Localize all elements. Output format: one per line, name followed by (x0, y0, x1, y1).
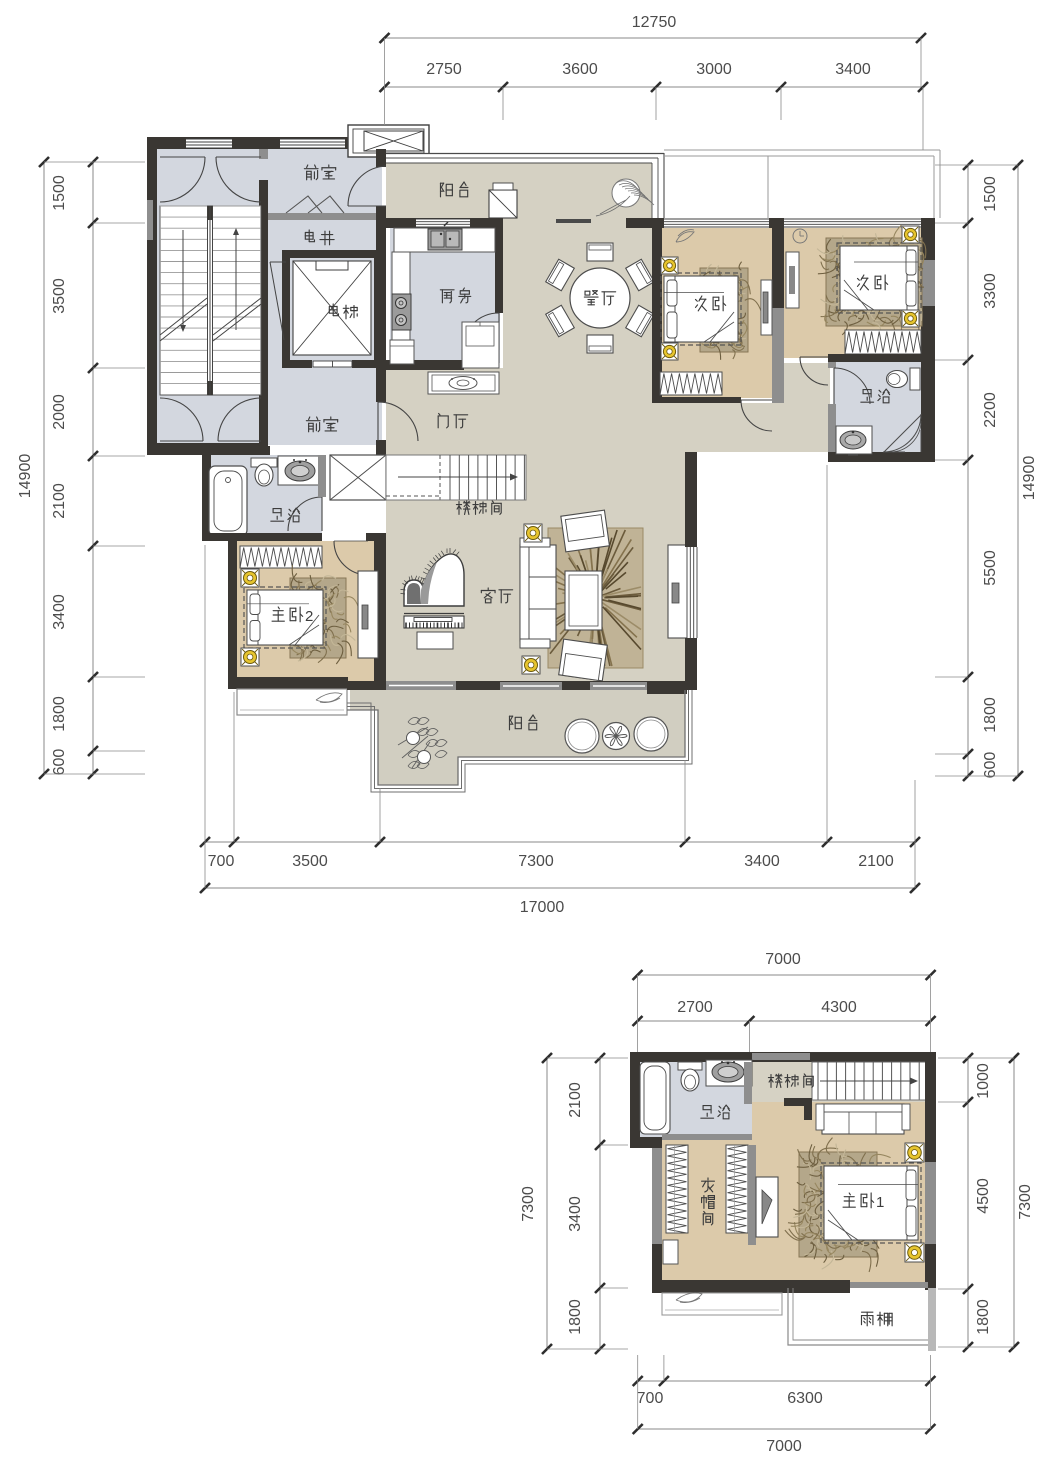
svg-text:2100: 2100 (567, 1082, 584, 1118)
svg-text:7300: 7300 (1017, 1184, 1034, 1220)
svg-text:600: 600 (982, 752, 999, 779)
svg-text:600: 600 (51, 749, 68, 776)
svg-text:3400: 3400 (51, 594, 68, 630)
svg-text:7300: 7300 (518, 853, 554, 870)
svg-text:1800: 1800 (51, 696, 68, 732)
svg-text:7000: 7000 (766, 1438, 802, 1455)
svg-text:3400: 3400 (835, 61, 871, 78)
svg-text:2750: 2750 (426, 61, 462, 78)
svg-text:4300: 4300 (821, 999, 857, 1016)
svg-text:2000: 2000 (51, 394, 68, 430)
svg-text:14900: 14900 (1021, 456, 1038, 501)
svg-text:700: 700 (637, 1390, 664, 1407)
svg-text:6300: 6300 (787, 1390, 823, 1407)
svg-text:14900: 14900 (17, 454, 34, 499)
svg-text:12750: 12750 (632, 14, 677, 31)
svg-text:3500: 3500 (51, 278, 68, 314)
svg-text:700: 700 (208, 853, 235, 870)
svg-text:2: 2 (305, 608, 313, 625)
svg-text:2100: 2100 (858, 853, 894, 870)
svg-text:5500: 5500 (982, 550, 999, 586)
svg-text:2200: 2200 (982, 392, 999, 428)
svg-text:1500: 1500 (51, 175, 68, 211)
svg-text:7300: 7300 (520, 1186, 537, 1222)
svg-text:1800: 1800 (567, 1299, 584, 1335)
svg-text:3400: 3400 (567, 1196, 584, 1232)
svg-text:2700: 2700 (677, 999, 713, 1016)
svg-text:17000: 17000 (520, 899, 565, 916)
svg-text:3400: 3400 (744, 853, 780, 870)
svg-text:4500: 4500 (975, 1178, 992, 1214)
svg-text:3000: 3000 (696, 61, 732, 78)
svg-text:1: 1 (876, 1194, 884, 1211)
svg-text:3500: 3500 (292, 853, 328, 870)
svg-text:1800: 1800 (975, 1299, 992, 1335)
svg-text:2100: 2100 (51, 483, 68, 519)
svg-text:1800: 1800 (982, 697, 999, 733)
svg-text:1000: 1000 (975, 1063, 992, 1099)
svg-text:1500: 1500 (982, 176, 999, 212)
svg-text:7000: 7000 (765, 951, 801, 968)
svg-text:3300: 3300 (982, 273, 999, 309)
svg-text:3600: 3600 (562, 61, 598, 78)
